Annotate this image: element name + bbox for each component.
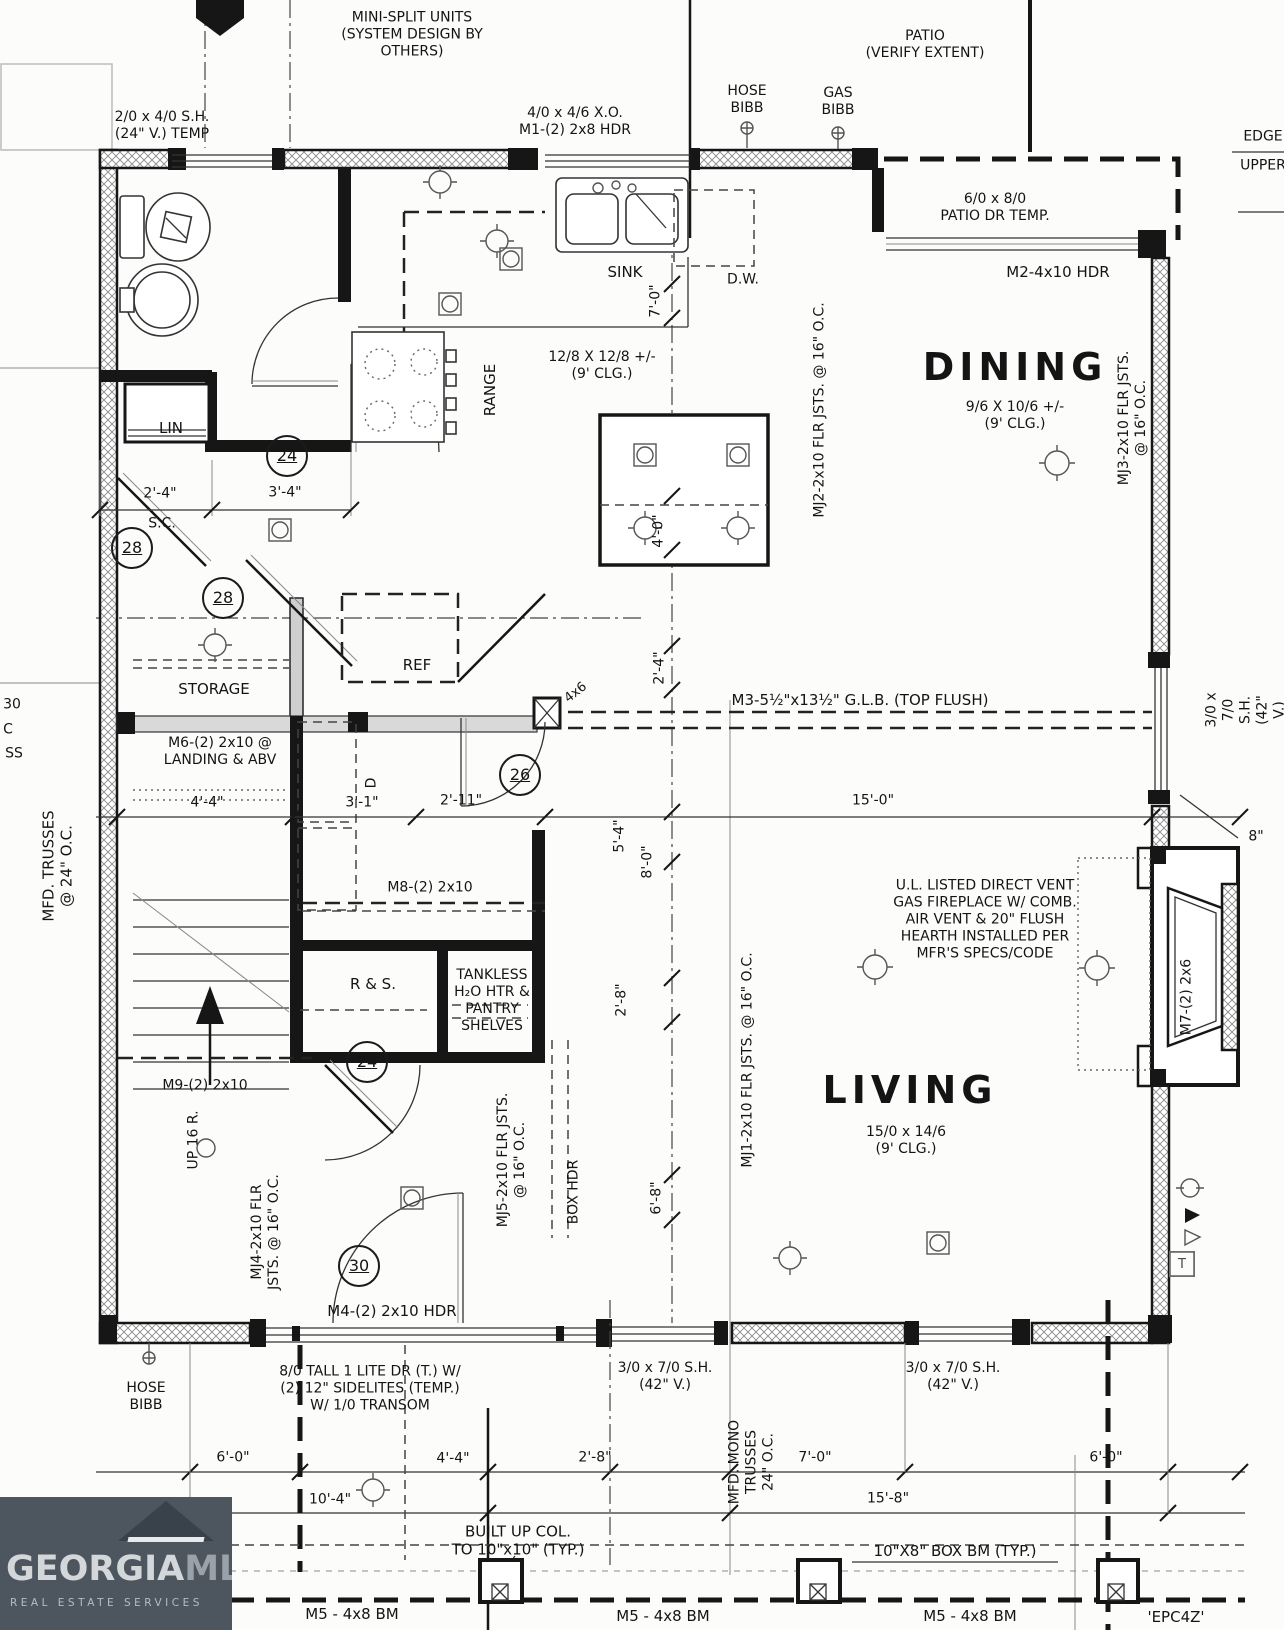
dim-6-0b: 6'-0": [1089, 1449, 1122, 1466]
lin-label: LIN: [159, 419, 183, 437]
sc-label: S.C.: [148, 515, 176, 532]
keynote-28b: 28: [202, 577, 244, 619]
house-roof-accent: [127, 1537, 204, 1542]
logo-text-mls: MLS: [184, 1549, 232, 1589]
room-living: LIVING: [823, 1067, 998, 1113]
gas-bibb: GAS BIBB: [822, 85, 855, 119]
range-label: RANGE: [481, 364, 499, 416]
m7-beam: M7-(2) 2x6: [1178, 959, 1195, 1035]
dim-4-0: 4'-0": [650, 514, 667, 547]
logo-text-georgia: GEORGIA: [6, 1549, 184, 1589]
keynote-30: 30: [338, 1245, 380, 1287]
dim-7-0: 7'-0": [647, 284, 664, 317]
georgia-mls-logo: GEORGIAMLS REAL ESTATE SERVICES: [0, 1497, 232, 1630]
plan-labels: MINI-SPLIT UNITS (SYSTEM DESIGN BY OTHER…: [0, 0, 1284, 1630]
dim-15-8: 15'-8": [867, 1490, 909, 1507]
dim-8-0: 8'-0": [639, 845, 656, 878]
m2-hdr: M2-4x10 HDR: [1006, 263, 1109, 281]
mj2-joists: MJ2-2x10 FLR JSTS. @ 16" O.C.: [811, 302, 828, 517]
window-2040: 2/0 x 4/0 S.H. (24" V.) TEMP: [115, 109, 210, 143]
mj4-joists: MJ4-2x10 FLR JSTS. @ 16" O.C.: [249, 1174, 283, 1290]
dim-3-1: 3'-1": [345, 794, 378, 811]
ref-label: REF: [403, 656, 432, 674]
edge-label: EDGE: [1243, 128, 1282, 145]
dim-2-4a: 2'-4": [143, 485, 176, 502]
room-dining: DINING: [923, 344, 1108, 390]
dim-4-4b: 4'-4": [436, 1450, 469, 1467]
dim-10-4: 10'-4": [309, 1491, 351, 1508]
mfd-trusses: MFD. TRUSSES @ 24" O.C.: [40, 810, 77, 921]
dim-5-4: 5'-4": [611, 819, 628, 852]
keynote-24b: 24: [346, 1041, 388, 1083]
dim-7-0b: 7'-0": [798, 1449, 831, 1466]
dim-15-0: 15'-0": [852, 792, 894, 809]
dim-2-11: 2'-11": [440, 792, 482, 809]
dim-2-8b: 2'-8": [578, 1449, 611, 1466]
dim-2-4b: 2'-4": [651, 651, 668, 684]
keynote-26: 26: [499, 754, 541, 796]
edge-frag-c: SS: [5, 745, 23, 762]
rs-label: R & S.: [350, 975, 396, 993]
dim-8in: 8": [1248, 828, 1263, 845]
note-minisplit: MINI-SPLIT UNITS (SYSTEM DESIGN BY OTHER…: [341, 9, 483, 60]
post-4x6-a: 4x6: [562, 679, 591, 706]
mj1-joists: MJ1-2x10 FLR JSTS. @ 16" O.C.: [739, 952, 756, 1167]
logo-tagline: REAL ESTATE SERVICES: [10, 1597, 203, 1609]
dim-6-8: 6'-8": [648, 1181, 665, 1214]
patio-note: PATIO (VERIFY EXTENT): [866, 28, 985, 62]
box-bm: 10"X8" BOX BM (TYP.): [874, 1542, 1037, 1560]
dim-3-4: 3'-4": [268, 484, 301, 501]
logo-brand: GEORGIAMLS: [6, 1549, 232, 1589]
thermostat: T: [1169, 1251, 1195, 1277]
tankless-note: TANKLESS H₂O HTR & PANTRY SHELVES: [454, 967, 530, 1035]
dim-6-0a: 6'-0": [216, 1449, 249, 1466]
m6-landing: M6-(2) 2x10 @ LANDING & ABV: [164, 735, 277, 769]
sink-label: SINK: [607, 263, 642, 281]
m5-bm-a: M5 - 4x8 BM: [305, 1605, 398, 1623]
box-hdr: BOX HDR: [565, 1160, 582, 1225]
house-roof-icon: [118, 1501, 214, 1541]
m5-bm-b: M5 - 4x8 BM: [616, 1607, 709, 1625]
m3-glb: M3-5½"x13½" G.L.B. (TOP FLUSH): [732, 691, 989, 709]
floor-plan-sheet: MINI-SPLIT UNITS (SYSTEM DESIGN BY OTHER…: [0, 0, 1284, 1630]
keynote-28a: 28: [111, 527, 153, 569]
m8-beam: M8-(2) 2x10: [387, 879, 472, 896]
patio-door: 6/0 x 8/0 PATIO DR TEMP.: [940, 191, 1049, 225]
mono-trusses: MFD. MONO TRUSSES 24" O.C.: [726, 1420, 777, 1504]
builtup-col: BUILT UP COL. TO 10"x10" (TYP.): [452, 1523, 585, 1560]
hose-bibb-bottom: HOSE BIBB: [126, 1380, 165, 1414]
m4-hdr: M4-(2) 2x10 HDR: [327, 1302, 456, 1320]
window-3070-b: 3/0 x 7/0 S.H. (42" V.): [906, 1360, 1001, 1394]
epc4z: 'EPC4Z': [1147, 1608, 1204, 1626]
window-4046: 4/0 x 4/6 X.O. M1-(2) 2x8 HDR: [519, 105, 631, 139]
window-3070-a: 3/0 x 7/0 S.H. (42" V.): [618, 1360, 713, 1394]
m5-bm-c: M5 - 4x8 BM: [923, 1607, 1016, 1625]
edge-frag-b: C: [3, 721, 13, 738]
dim-2-8v: 2'-8": [613, 983, 630, 1016]
keynote-24a: 24: [266, 435, 308, 477]
living-size: 15/0 x 14/6 (9' CLG.): [866, 1124, 946, 1158]
dryer-label: D: [363, 778, 380, 789]
edge-frag-a: 30: [3, 696, 21, 713]
up-16r: UP 16 R.: [185, 1110, 202, 1169]
mj5-joists: MJ5-2x10 FLR JSTS. @ 16" O.C.: [495, 1093, 529, 1228]
m9-beam: M9-(2) 2x10: [162, 1077, 247, 1094]
dw-label: D.W.: [727, 271, 759, 288]
fireplace-note: U.L. LISTED DIRECT VENT GAS FIREPLACE W/…: [893, 877, 1076, 962]
upper-label: UPPER: [1240, 157, 1284, 174]
dim-4-4a: 4'-4": [190, 794, 223, 811]
window-3070-right: 3/0 x 7/0 S.H. (42" V.): [1203, 691, 1284, 729]
front-door-note: 8/0 TALL 1 LITE DR (T.) W/ (2) 12" SIDEL…: [279, 1363, 460, 1414]
storage-label: STORAGE: [178, 680, 249, 698]
hose-bibb-top: HOSE BIBB: [727, 83, 766, 117]
mj3-joists: MJ3-2x10 FLR JSTS. @ 16" O.C.: [1116, 343, 1150, 494]
dining-size: 9/6 X 10/6 +/- (9' CLG.): [966, 399, 1064, 433]
kitchen-size: 12/8 X 12/8 +/- (9' CLG.): [548, 349, 655, 383]
